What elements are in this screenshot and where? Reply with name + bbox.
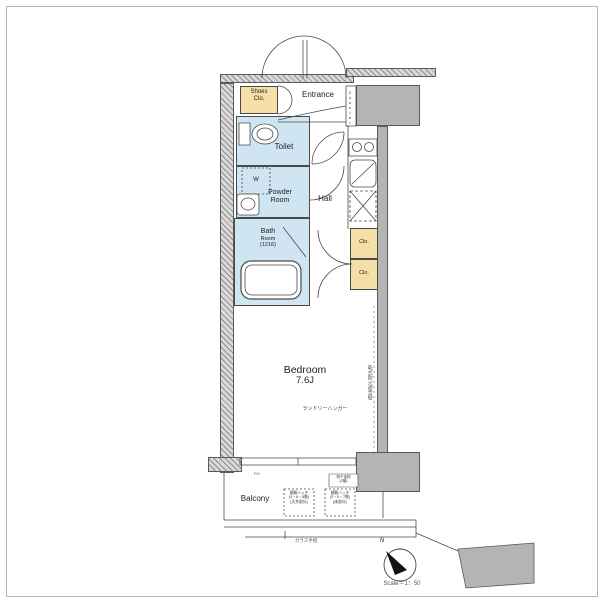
entry-step-curve: [278, 106, 346, 120]
site-block: [458, 543, 534, 588]
bathtub-icon: [241, 261, 301, 299]
shoes-closet-label: ShoesClo.: [240, 89, 278, 103]
closet-upper-label: Clo.: [350, 239, 378, 245]
closet-lower-label: Clo.: [350, 270, 378, 276]
escape-hatch-right-label: 避難ハッチ (3・5・7階) (床部分): [325, 491, 355, 504]
hall-label: Hall: [310, 194, 340, 203]
toilet-door-arc-icon: [312, 132, 344, 164]
compass-scale-label: Scale＝1：50: [372, 581, 432, 588]
entrance-door-arc-icon: [262, 36, 346, 78]
site-boundary-line: [416, 533, 458, 551]
powder-room-label: PowderRoom: [254, 189, 306, 205]
entrance-label: Entrance: [290, 90, 346, 99]
escape-hatch-left-label: 避難ハッチ (4・6・8階) (天井部分): [284, 491, 314, 504]
stove-icon: [349, 139, 377, 156]
bedroom-label: Bedroom 7.6J: [260, 364, 350, 387]
balcony-label: Balcony: [232, 494, 278, 503]
hall-door-arc-icon: [312, 132, 344, 164]
entrance-door-leaf-icon: [303, 40, 307, 78]
compass-north-label: N: [377, 538, 387, 545]
toilet-bowl-icon: [252, 124, 278, 144]
closet-door-arc-icon: [318, 230, 352, 264]
toilet-label: Toilet: [262, 142, 306, 151]
corner-note-label: 物干金物 (2階): [329, 475, 358, 483]
laundry-hanger-note: ランドリーハンガー: [294, 407, 356, 413]
north-compass-icon: [384, 549, 416, 581]
balcony-window-sill: [240, 458, 356, 465]
balcony-rail-lines: [224, 473, 416, 539]
bath-label: Bath Room (1216): [246, 228, 290, 249]
glass-rail-label: ガラス手摺: [287, 538, 325, 543]
toilet-tank-icon: [239, 123, 250, 145]
fix-window-label: FIX: [246, 472, 268, 477]
counter-label: Counter: [347, 89, 352, 125]
bedroom-door-arc-icon: [318, 264, 352, 298]
counter-x-icon: [350, 191, 376, 221]
party-wall-note: 乾式耐火遮音壁: [366, 342, 372, 422]
washer-label: W: [242, 177, 270, 184]
shoes-door-arc-icon: [278, 100, 292, 114]
floor-plan: ShoesClo. Entrance Counter Toilet W Powd…: [0, 0, 604, 603]
